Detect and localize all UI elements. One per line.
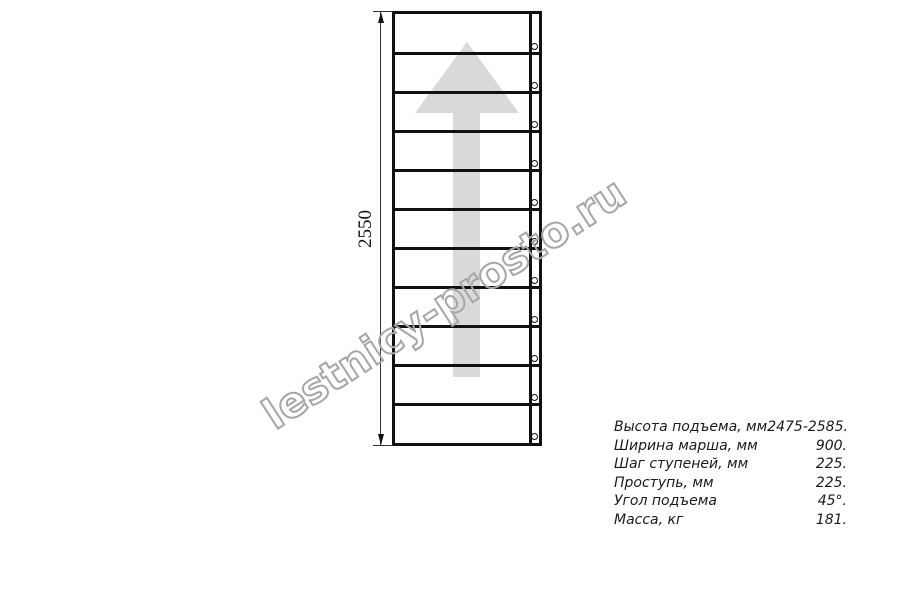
dimension-label: 2550 xyxy=(355,189,377,269)
tread-divider-line xyxy=(395,52,539,55)
tread-divider-line xyxy=(395,169,539,172)
dimension-line xyxy=(380,12,381,445)
spec-row-height: Высота подъема, мм 2475-2585. xyxy=(614,418,847,437)
spec-value: 225. xyxy=(816,455,847,474)
spec-value: 225. xyxy=(816,474,847,493)
baluster-hole-icon xyxy=(531,394,538,401)
baluster-hole-icon xyxy=(531,43,538,50)
spec-table: Высота подъема, мм 2475-2585. Ширина мар… xyxy=(614,418,847,529)
baluster-hole-icon xyxy=(531,160,538,167)
spec-row-width: Ширина марша, мм 900. xyxy=(614,437,847,456)
tread-divider-line xyxy=(395,208,539,211)
baluster-hole-icon xyxy=(531,433,538,440)
spec-row-mass: Масса, кг 181. xyxy=(614,511,847,530)
tread-divider-line xyxy=(395,91,539,94)
tread-divider-line xyxy=(395,130,539,133)
tread-divider-line xyxy=(395,403,539,406)
tread-divider-line xyxy=(395,325,539,328)
tread-divider-line xyxy=(395,286,539,289)
dimension-arrowhead-down-icon xyxy=(378,434,384,445)
spec-value: 2475-2585. xyxy=(767,418,848,437)
baluster-hole-icon xyxy=(531,199,538,206)
spec-row-step-pitch: Шаг ступеней, мм 225. xyxy=(614,455,847,474)
baluster-hole-icon xyxy=(531,316,538,323)
dimension-extension-tick-bottom xyxy=(373,445,393,446)
spec-label: Ширина марша, мм xyxy=(614,437,758,456)
baluster-hole-icon xyxy=(531,121,538,128)
dimension-arrowhead-up-icon xyxy=(378,12,384,23)
spec-value: 900. xyxy=(816,437,847,456)
baluster-hole-icon xyxy=(531,355,538,362)
drawing-canvas: 2550 lestnicy-prosto.ru Высота подъема, … xyxy=(0,0,900,600)
stringer-line xyxy=(529,14,532,443)
spec-label: Шаг ступеней, мм xyxy=(614,455,748,474)
baluster-hole-icon xyxy=(531,277,538,284)
spec-label: Высота подъема, мм xyxy=(614,418,767,437)
tread-divider-line xyxy=(395,247,539,250)
spec-label: Проступь, мм xyxy=(614,474,714,493)
spec-label: Угол подъема xyxy=(614,492,717,511)
baluster-hole-icon xyxy=(531,82,538,89)
spec-row-tread-depth: Проступь, мм 225. xyxy=(614,474,847,493)
spec-value: 181. xyxy=(816,511,847,530)
spec-label: Масса, кг xyxy=(614,511,683,530)
baluster-hole-icon xyxy=(531,238,538,245)
spec-value: 45°. xyxy=(818,492,847,511)
tread-divider-line xyxy=(395,364,539,367)
spec-row-angle: Угол подъема 45°. xyxy=(614,492,847,511)
stair-plan xyxy=(392,11,542,446)
